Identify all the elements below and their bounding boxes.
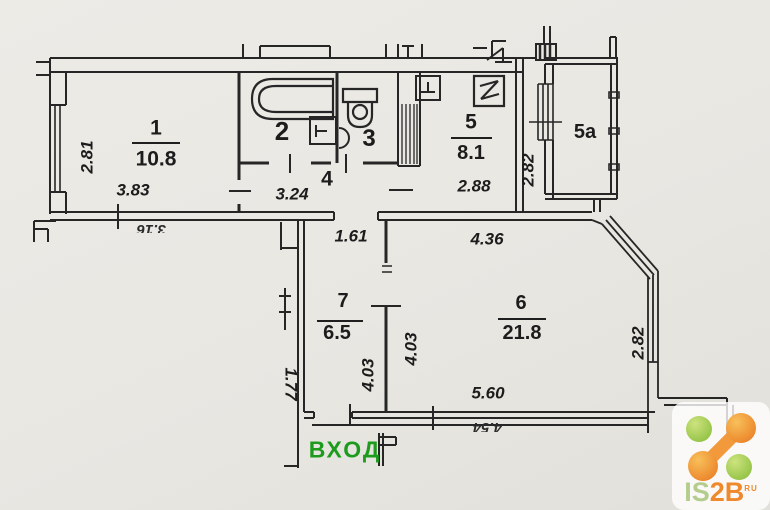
dim-neighbor-cut-left: 3.16 (120, 221, 166, 233)
dim-room6-top: 4.36 (470, 231, 503, 248)
logo-orange-circle-top (726, 413, 756, 443)
room5-area: 8.1 (457, 143, 485, 163)
logo-green-circle-top (686, 416, 712, 442)
room1-area: 10.8 (136, 149, 177, 170)
dim-room1-width: 3.83 (116, 182, 149, 199)
dim-bay-height: 2.82 (630, 326, 647, 359)
duct-hatch (402, 104, 417, 164)
room1-fraction-line (132, 142, 180, 144)
room6-fraction-line (498, 318, 546, 320)
kitchen-loggia-window-icon (529, 84, 562, 140)
logo-text-is: IS (684, 477, 710, 507)
dim-kitchen-height: 2.82 (520, 153, 537, 186)
logo-text-2b: 2B (710, 477, 745, 507)
dim-room6-height: 4.03 (403, 332, 420, 365)
logo-text: IS2BRU (672, 479, 770, 506)
room3-number: 3 (362, 127, 375, 151)
dim-corridor: 1.61 (334, 228, 367, 245)
watermark-logo: IS2BRU (672, 402, 770, 510)
room2-number: 2 (275, 118, 289, 144)
stove-icon (474, 76, 504, 106)
dim-room6-bottom: 5.60 (471, 385, 504, 402)
dim-neighbor-height: 1.77 (283, 367, 300, 400)
room5a-number: 5a (574, 122, 596, 142)
toilet-icon (343, 89, 377, 127)
dim-room7-height: 4.03 (360, 358, 377, 391)
bathtub-icon (252, 79, 333, 119)
room7-area: 6.5 (323, 323, 351, 343)
room1-window-icon (55, 105, 60, 192)
room7-number: 7 (337, 291, 348, 311)
entrance-label: ВХОД (309, 437, 381, 464)
sink-icon (310, 117, 349, 148)
room1-number: 1 (150, 118, 162, 139)
dim-kitchen-width: 2.88 (457, 178, 490, 195)
floorplan-drawing (0, 0, 770, 510)
room5-fraction-line (451, 137, 492, 139)
bay-window-icon (592, 216, 658, 412)
dim-room1-height: 2.81 (79, 140, 96, 173)
floorplan-page: 1 10.8 2 3 4 5 8.1 5a 6 21.8 7 6.5 2.81 … (0, 0, 770, 510)
logo-text-suffix: RU (744, 484, 758, 493)
room6-number: 6 (515, 293, 526, 313)
dim-hall: 3.24 (275, 186, 308, 203)
walls (34, 26, 733, 468)
room4-number: 4 (321, 169, 333, 190)
dim-neighbor-cut-right: 4.54 (456, 419, 502, 432)
room6-area: 21.8 (503, 323, 542, 343)
room5-number: 5 (465, 112, 477, 133)
